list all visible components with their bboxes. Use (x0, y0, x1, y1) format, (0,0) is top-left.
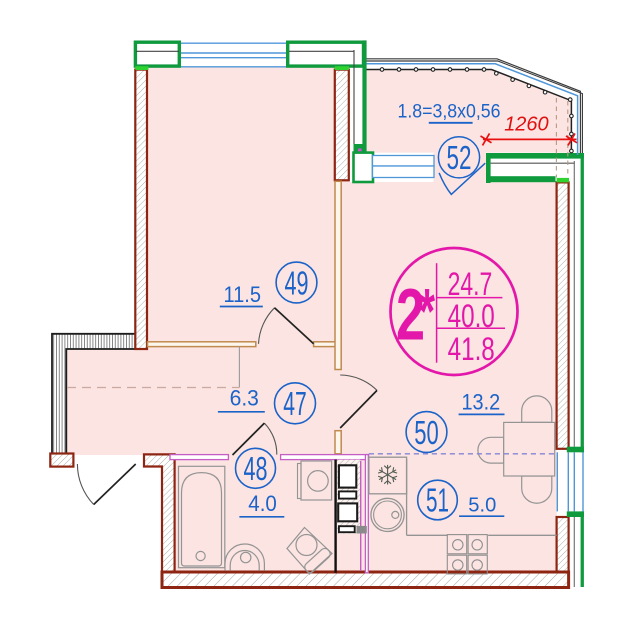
svg-text:11.5: 11.5 (224, 282, 262, 307)
svg-text:40.0: 40.0 (448, 298, 495, 334)
svg-text:49: 49 (285, 265, 309, 302)
svg-text:5.0: 5.0 (468, 494, 496, 517)
svg-text:*: * (419, 275, 435, 347)
svg-text:48: 48 (244, 450, 268, 487)
svg-text:24.7: 24.7 (448, 266, 493, 302)
svg-text:1.8=3,8x0,56: 1.8=3,8x0,56 (398, 102, 501, 123)
svg-text:6.3: 6.3 (230, 386, 259, 411)
svg-text:41.8: 41.8 (448, 331, 495, 367)
svg-text:52: 52 (447, 139, 472, 176)
svg-text:13.2: 13.2 (462, 390, 501, 415)
svg-text:47: 47 (283, 385, 307, 422)
svg-text:50: 50 (414, 414, 439, 451)
svg-text:1260: 1260 (504, 114, 549, 136)
svg-text:51: 51 (426, 482, 449, 519)
svg-text:4.0: 4.0 (248, 491, 276, 516)
